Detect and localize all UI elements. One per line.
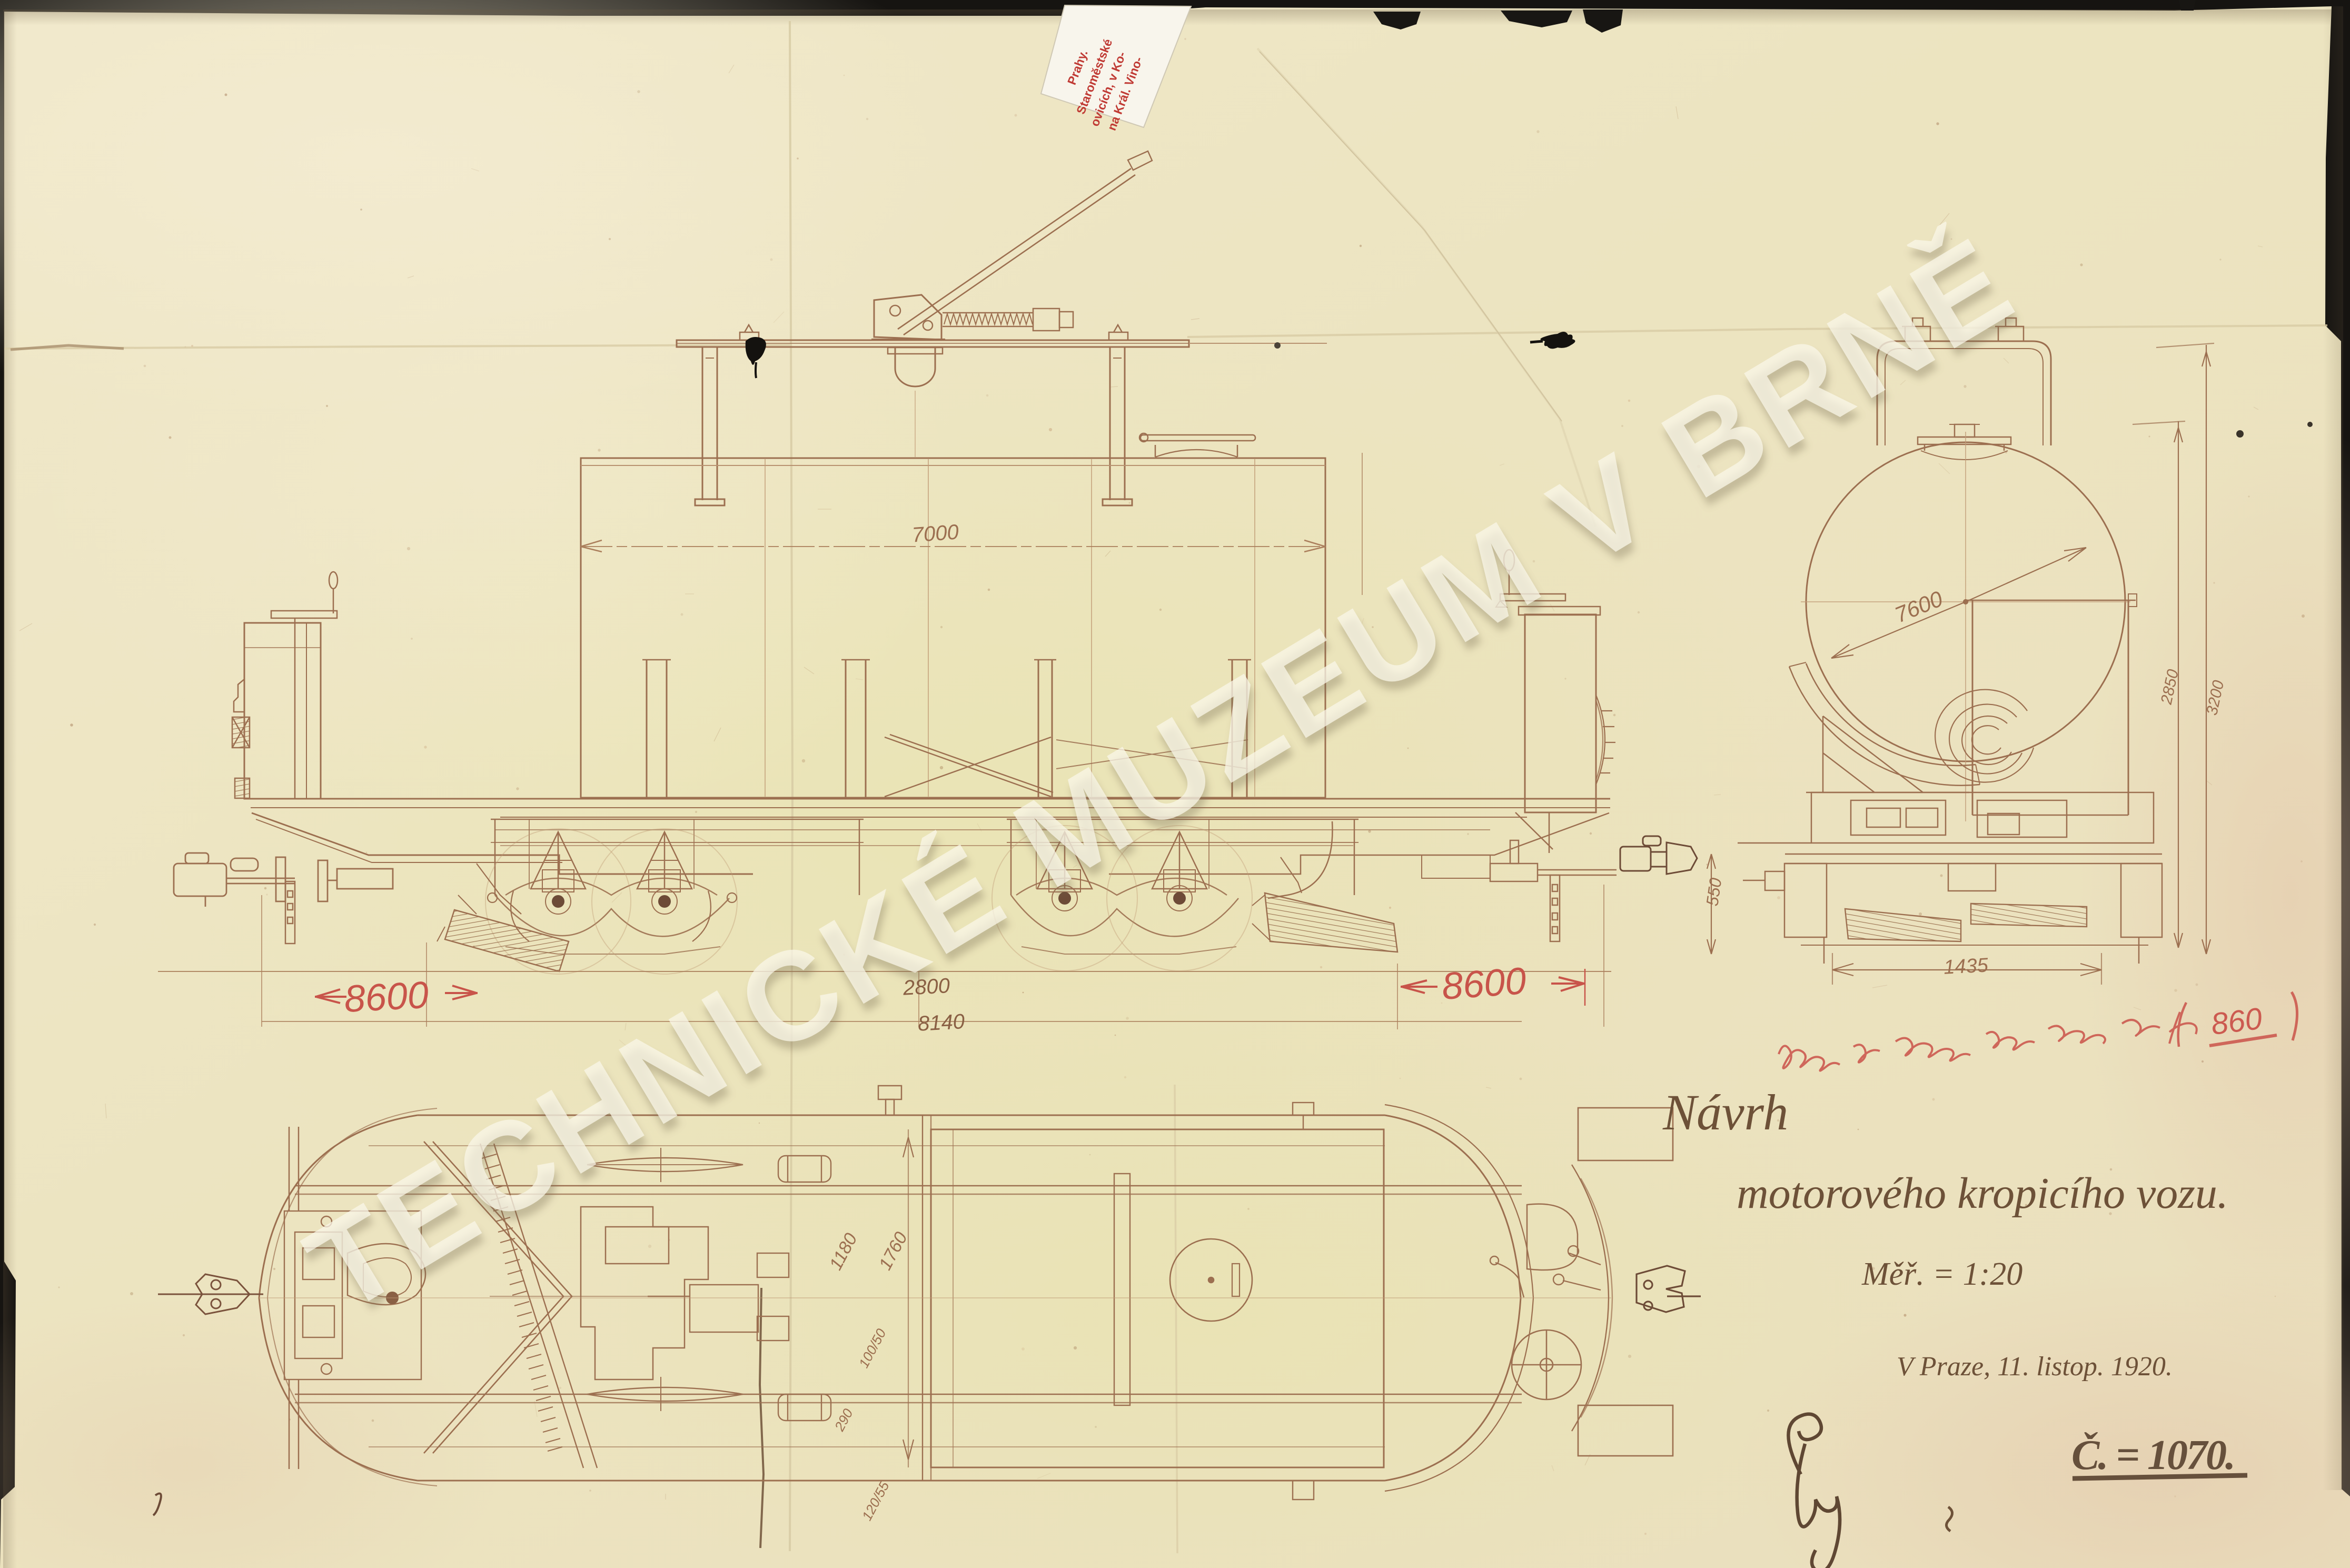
svg-text:7000: 7000 [911, 520, 959, 547]
svg-text:Měř. = 1:20: Měř. = 1:20 [1861, 1256, 2022, 1292]
svg-text:V Praze, 11. listop. 1920.: V Praze, 11. listop. 1920. [1897, 1352, 2173, 1382]
svg-text:8140: 8140 [917, 1010, 965, 1036]
svg-text:motorového kropicího vozu.: motorového kropicího vozu. [1737, 1169, 2228, 1218]
svg-text:1435: 1435 [1943, 954, 1989, 978]
svg-text:8600: 8600 [343, 974, 430, 1020]
svg-text:8600: 8600 [1441, 960, 1528, 1008]
svg-text:550: 550 [1702, 877, 1725, 907]
svg-text:Č. = 1070.: Č. = 1070. [2071, 1432, 2234, 1478]
svg-text:Návrh: Návrh [1662, 1084, 1788, 1140]
svg-text:860: 860 [2209, 1001, 2264, 1041]
